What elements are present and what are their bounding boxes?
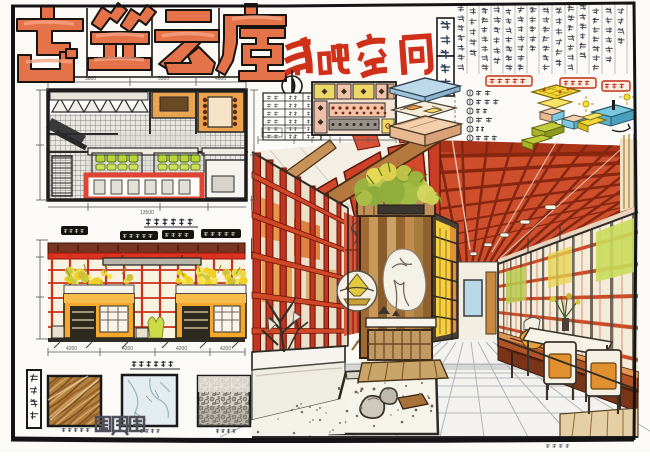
svg-text:4200: 4200 <box>66 346 77 352</box>
svg-text:4200: 4200 <box>220 346 231 352</box>
svg-text:4200: 4200 <box>176 346 187 352</box>
svg-text:13500: 13500 <box>140 210 154 216</box>
svg-text:4200: 4200 <box>122 346 133 352</box>
